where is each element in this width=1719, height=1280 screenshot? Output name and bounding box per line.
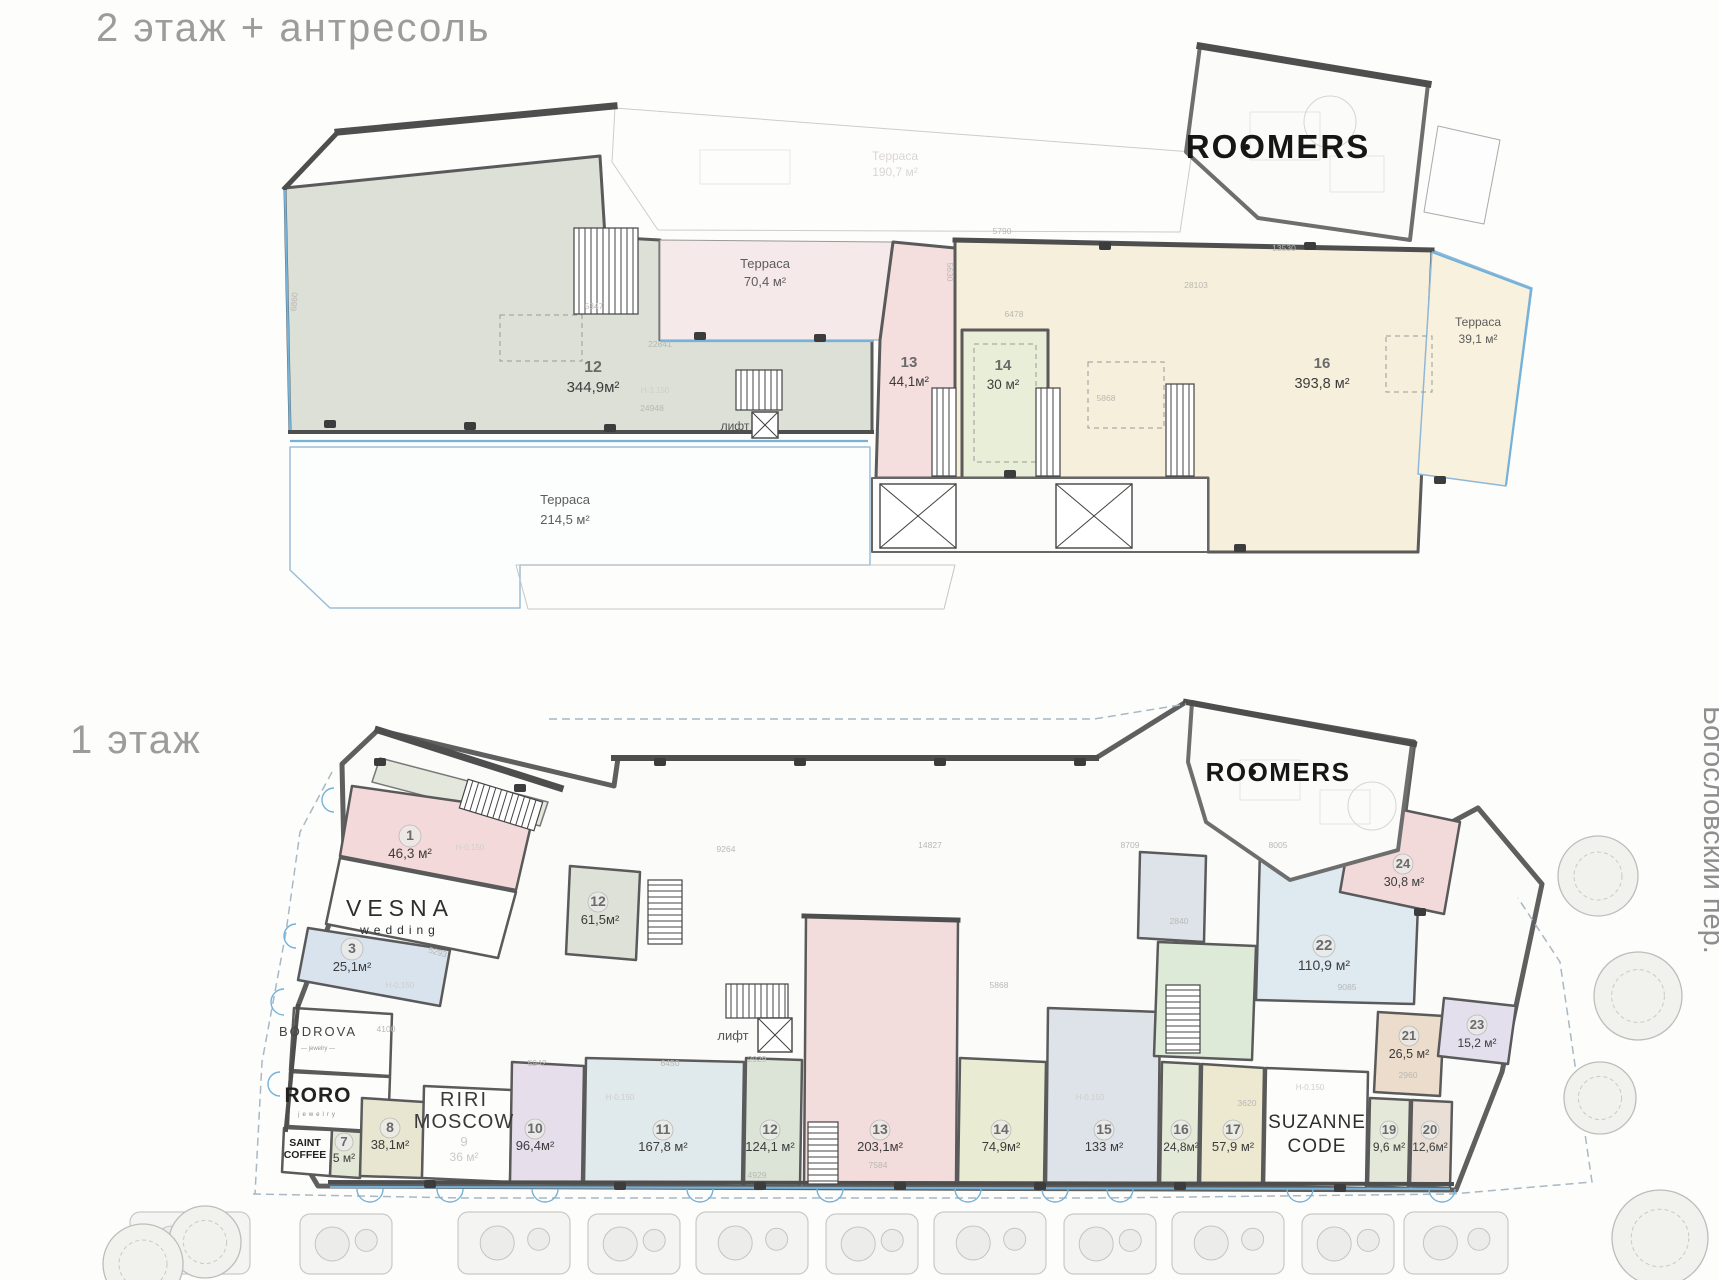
wall-marker-pill — [754, 1182, 766, 1190]
room-15-upper — [1138, 852, 1206, 942]
planter — [1172, 1212, 1284, 1274]
wall-marker-pill — [1174, 1182, 1186, 1190]
room-9-area: 36 м² — [450, 1150, 479, 1164]
wall-marker-pill — [324, 420, 336, 428]
room-13g-area: 203,1м² — [857, 1139, 903, 1154]
wall-marker-pill — [694, 332, 706, 340]
wall-marker-pill — [1099, 242, 1111, 250]
room-10-number: 10 — [527, 1120, 543, 1136]
room-23-number: 23 — [1470, 1017, 1484, 1032]
dim: 8709 — [1121, 840, 1140, 850]
terrace-39-area: 39,1 м² — [1459, 332, 1498, 346]
terrace-70-name: Терраса — [740, 256, 791, 271]
wall-marker-pill — [1434, 476, 1446, 484]
tree-sketch — [1558, 836, 1638, 916]
room-14g-area: 74,9м² — [982, 1139, 1021, 1154]
level-mark: H-0.150 — [456, 843, 485, 852]
dim: 6478 — [1005, 309, 1024, 319]
saint-coffee-brand-1: SAINT — [289, 1137, 321, 1149]
planter — [696, 1212, 808, 1274]
dim: 6450 — [661, 1058, 680, 1068]
level-mark: H-0.150 — [1296, 1083, 1325, 1092]
room-9-number: 9 — [460, 1134, 467, 1149]
room-20-area: 12,6м² — [1412, 1140, 1448, 1154]
planter — [458, 1212, 570, 1274]
riri-brand-2: MOSCOW — [414, 1111, 514, 1133]
vesna-sub: wedding — [359, 923, 440, 937]
room-14-number: 14 — [995, 357, 1012, 374]
planter — [1064, 1214, 1156, 1274]
door-arc — [268, 1072, 280, 1096]
tree-sketch — [1594, 952, 1682, 1040]
room-14-f2 — [962, 330, 1048, 478]
room-14g-number: 14 — [993, 1121, 1009, 1137]
room-12m-number: 12 — [590, 893, 606, 909]
door-arc — [532, 1189, 558, 1202]
wall-marker-pill — [814, 334, 826, 342]
tree-sketch — [1564, 1062, 1636, 1134]
dim: 5790 — [993, 226, 1012, 236]
wall-marker-pill — [1004, 470, 1016, 478]
planter — [300, 1214, 392, 1274]
riri-brand-1: RIRI — [440, 1089, 488, 1111]
elevator-shaft-box — [758, 1018, 792, 1052]
room-15-area: 133 м² — [1085, 1139, 1124, 1154]
elevator-shaft-box — [752, 412, 778, 438]
room-1-number: 1 — [406, 827, 414, 843]
room-19-number: 19 — [1382, 1122, 1396, 1137]
bodrova-sub: — jewelry — — [301, 1046, 335, 1052]
dim: 7584 — [869, 1160, 888, 1170]
level-mark: H-0.150 — [1076, 1093, 1105, 1102]
wall-marker-pill — [654, 758, 666, 766]
wall-marker-pill — [1234, 544, 1246, 552]
wall-marker-pill — [1074, 758, 1086, 766]
roro-brand: RORO — [285, 1084, 352, 1107]
dim: 14827 — [918, 840, 942, 850]
terrace-190-area: 190,7 м² — [872, 165, 918, 179]
suzanne-brand-2: CODE — [1288, 1136, 1347, 1157]
room-17-area: 57,9 м² — [1212, 1139, 1255, 1154]
terrace-small-topright — [1424, 126, 1500, 224]
wall-marker-pill — [604, 424, 616, 432]
floorplan-page: { "colors":{"wall":"#4e4e4e","roomStroke… — [0, 0, 1719, 1280]
dim: 4100 — [377, 1024, 396, 1034]
wall-marker-pill — [514, 784, 526, 792]
terrace-39 — [1418, 250, 1532, 486]
stairs-hatch — [1036, 388, 1060, 476]
stairs-hatch — [736, 370, 782, 410]
room-16g-area: 24,8м² — [1163, 1140, 1199, 1154]
terrace-70 — [660, 240, 893, 340]
wall — [285, 132, 338, 188]
dim: 13530 — [1272, 243, 1296, 253]
dim: 2840 — [1170, 916, 1189, 926]
room-24-number: 24 — [1396, 856, 1411, 871]
planter — [588, 1214, 680, 1274]
room-16g-number: 16 — [1173, 1121, 1189, 1137]
terrace-214-name: Терраса — [540, 492, 591, 507]
roomers-keyhole-icon — [1244, 144, 1250, 150]
wall-marker-pill — [1304, 242, 1316, 250]
wall-marker-pill — [934, 758, 946, 766]
planter — [1404, 1212, 1508, 1274]
suzanne-brand-1: SUZANNE — [1268, 1112, 1366, 1133]
terrace-214-area: 214,5 м² — [540, 512, 590, 527]
room-13-area: 44,1м² — [889, 374, 930, 389]
room-3-number: 3 — [348, 940, 356, 956]
room-7-area: 5 м² — [333, 1151, 355, 1165]
wall-marker-pill — [794, 758, 806, 766]
room-12g-number: 12 — [762, 1121, 778, 1137]
roomers-keyhole-icon — [1250, 769, 1256, 775]
room-21-number: 21 — [1402, 1028, 1416, 1043]
stairs-hatch — [808, 1122, 838, 1184]
wall-marker-pill — [1334, 1184, 1346, 1192]
planter — [934, 1212, 1046, 1274]
room-bodrova — [290, 1008, 392, 1076]
room-13-number: 13 — [901, 354, 918, 371]
terrace-214 — [290, 447, 870, 608]
dim: 6860 — [288, 292, 300, 312]
bodrova-brand: BODROVA — [279, 1024, 357, 1039]
room-21-area: 26,5 м² — [1389, 1047, 1430, 1061]
dim: 4929 — [748, 1170, 767, 1180]
room-20-number: 20 — [1423, 1122, 1437, 1137]
room-12g-area: 124,1 м² — [745, 1139, 795, 1154]
stairs-hatch — [648, 880, 682, 944]
room-3-area: 25,1м² — [333, 959, 372, 974]
room-11-area: 167,8 м² — [638, 1139, 688, 1154]
stairs-hatch — [726, 984, 788, 1018]
dim: 5868 — [1097, 393, 1116, 403]
lift-label-f1: лифт — [717, 1028, 748, 1043]
door-arc — [817, 1189, 843, 1202]
wall — [330, 1182, 1452, 1184]
dim: 24948 — [640, 403, 664, 413]
planter — [826, 1214, 918, 1274]
terrace-190-name: Терраса — [872, 149, 918, 163]
vesna-brand: VESNA — [346, 895, 454, 921]
wall-marker-pill — [894, 1182, 906, 1190]
room-14-area: 30 м² — [987, 377, 1020, 392]
dim: 2929 — [748, 1054, 767, 1064]
terrace-ledge — [516, 565, 955, 609]
wall-marker-pill — [464, 422, 476, 430]
door-arc — [955, 1189, 981, 1202]
room-13g-number: 13 — [872, 1121, 888, 1137]
lift-label-f2: лифт — [721, 419, 750, 433]
floor-1: 146,3 м²VESNAwedding325,1м²BODROVA— jewe… — [103, 702, 1719, 1280]
dim: 8005 — [1269, 840, 1288, 850]
level-mark: H-0.150 — [386, 981, 415, 990]
boundary-dashed-line — [549, 704, 1186, 719]
wall — [338, 106, 614, 132]
room-23-area: 15,2 м² — [1458, 1036, 1497, 1050]
dim: 3620 — [1238, 1098, 1257, 1108]
tree-sketch — [1612, 1190, 1708, 1280]
stairs-hatch — [932, 388, 956, 476]
door-arc — [687, 1189, 713, 1202]
dim: 9085 — [1338, 982, 1357, 992]
level-mark: H-0.150 — [606, 1093, 635, 1102]
door-arc — [322, 788, 334, 812]
room-16-area: 393,8 м² — [1294, 376, 1349, 392]
room-12-area: 344,9м² — [567, 379, 620, 396]
room-12m-area: 61,5м² — [581, 912, 620, 927]
room-15-number: 15 — [1096, 1121, 1112, 1137]
stairs-hatch — [1166, 985, 1200, 1053]
room-1-area: 46,3 м² — [388, 846, 432, 861]
room-22-number: 22 — [1316, 937, 1333, 954]
room-11-number: 11 — [656, 1121, 671, 1137]
floorplan-canvas: Терраса190,7 м²ROOMERS12344,9м²H-3.150Те… — [0, 0, 1719, 1280]
dim: 28103 — [1184, 280, 1208, 290]
room-10 — [510, 1062, 584, 1184]
terrace-39-name: Терраса — [1455, 315, 1501, 329]
roomers-logo-f1: ROOMERS — [1206, 757, 1351, 787]
terrace-70-area: 70,4 м² — [744, 274, 787, 289]
floor-2: Терраса190,7 м²ROOMERS12344,9м²H-3.150Те… — [285, 46, 1532, 609]
room-19-area: 9,6 м² — [1373, 1140, 1405, 1154]
room-12-level-mark: H-3.150 — [641, 386, 670, 395]
stairs-hatch — [1166, 384, 1194, 476]
room-10-area: 96,4м² — [516, 1138, 555, 1153]
saint-coffee-brand-2: COFFEE — [284, 1149, 327, 1161]
elevator-shaft-box — [1056, 484, 1132, 548]
dim: 5347 — [585, 301, 604, 311]
elevator-shaft-box — [880, 484, 956, 548]
street-name: Богословский пер. — [1697, 706, 1719, 954]
dim: 5630 — [945, 263, 955, 282]
roro-sub: jewelry — [297, 1112, 338, 1118]
room-16-number: 16 — [1314, 355, 1331, 372]
wall-marker-pill — [1414, 908, 1426, 916]
dim: 2960 — [1399, 1070, 1418, 1080]
wall-marker-pill — [614, 1182, 626, 1190]
room-8-number: 8 — [386, 1119, 394, 1135]
dim: 5942 — [528, 1058, 547, 1068]
room-22-area: 110,9 м² — [1298, 957, 1351, 973]
wall-marker-pill — [1034, 1182, 1046, 1190]
wall-marker-pill — [424, 1180, 436, 1188]
dim: 9264 — [717, 844, 736, 854]
door-arc — [437, 1189, 463, 1202]
wall-marker-pill — [374, 758, 386, 766]
roomers-logo-f2: ROOMERS — [1186, 128, 1371, 165]
dim: 5868 — [990, 980, 1009, 990]
room-7-number: 7 — [340, 1134, 347, 1149]
room-17-number: 17 — [1225, 1121, 1241, 1137]
planter — [1302, 1214, 1394, 1274]
dim: 22841 — [648, 339, 672, 349]
room-12-number: 12 — [584, 359, 602, 376]
room-24-area: 30,8 м² — [1384, 875, 1425, 889]
room-8-area: 38,1м² — [371, 1137, 410, 1152]
